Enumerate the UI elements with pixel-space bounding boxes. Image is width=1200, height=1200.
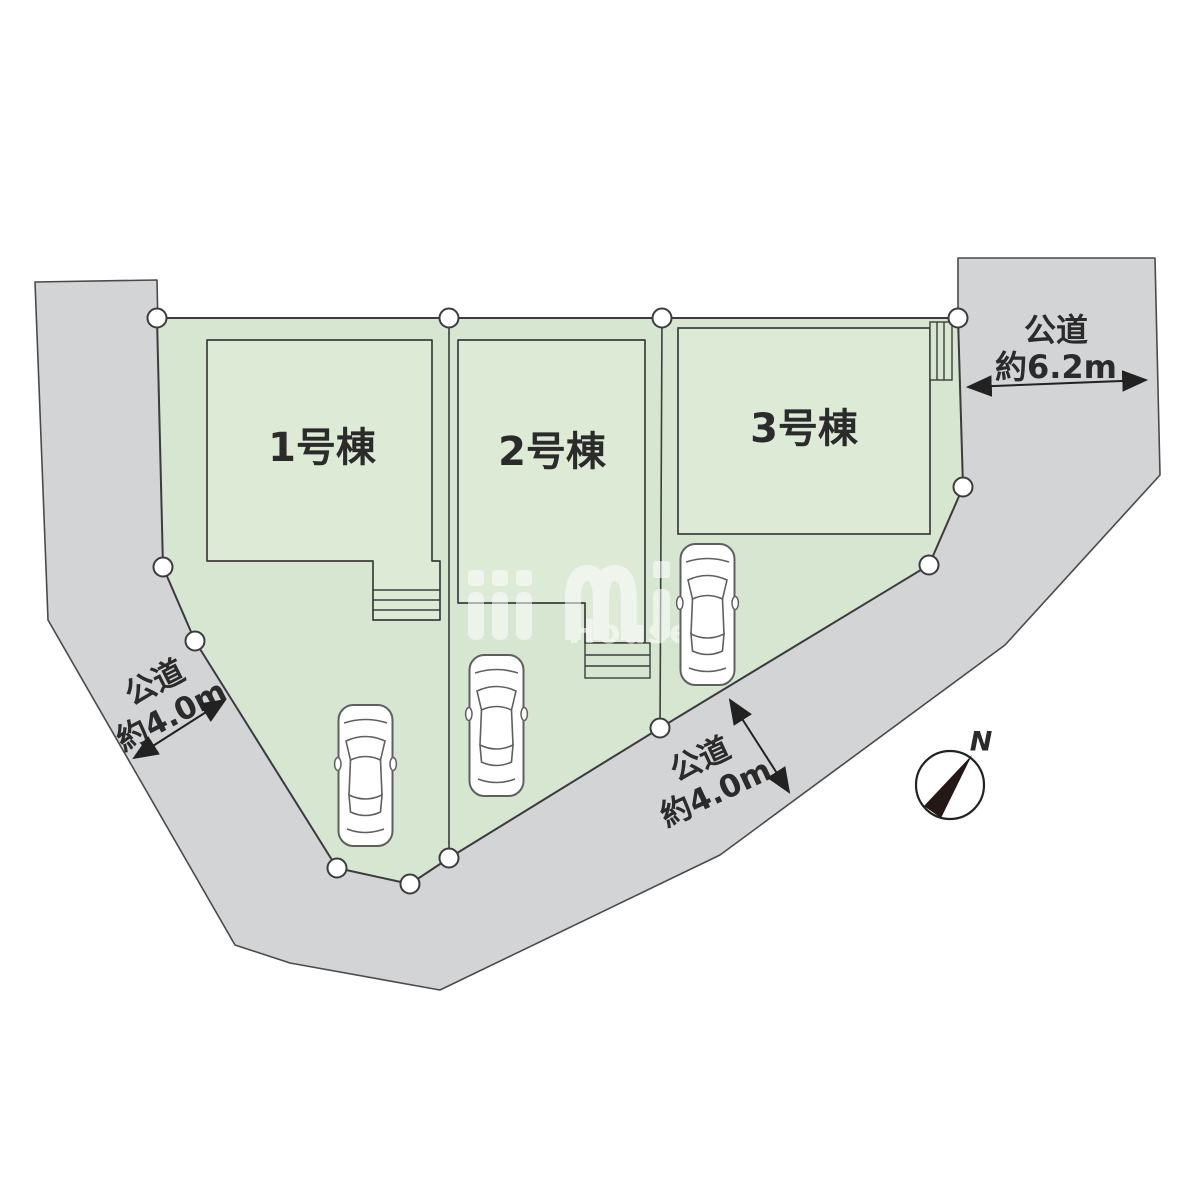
boundary-marker	[186, 632, 205, 651]
car-lot3	[677, 544, 739, 685]
boundary-marker	[920, 556, 939, 575]
watermark-logo-bars	[468, 570, 532, 640]
car-lot1	[335, 705, 397, 846]
road-right-name: 公道	[1024, 311, 1088, 349]
boundary-marker	[440, 849, 459, 868]
building-2-outline	[458, 340, 645, 643]
boundary-marker	[651, 719, 670, 738]
lot1-label: 1号棟	[268, 425, 377, 471]
boundary-marker	[440, 309, 459, 328]
boundary-marker	[154, 558, 173, 577]
car-lot2	[466, 655, 528, 796]
road-right-width: 約6.2m	[995, 348, 1117, 386]
boundary-marker	[653, 309, 672, 328]
building-3-entrance-steps	[930, 322, 952, 380]
compass: N	[916, 727, 993, 820]
boundary-marker	[328, 859, 347, 878]
site-plan-svg: House & 1号棟 2号棟 3号棟 公道 約6.2m 公道 約4.0m 公道…	[0, 0, 1200, 1200]
lot3-label: 3号棟	[750, 406, 859, 452]
boundary-marker	[401, 875, 420, 894]
boundary-marker	[949, 309, 968, 328]
boundary-marker	[954, 478, 973, 497]
lot2-label: 2号棟	[498, 429, 607, 475]
site-plan-canvas: House & 1号棟 2号棟 3号棟 公道 約6.2m 公道 約4.0m 公道…	[0, 0, 1200, 1200]
boundary-marker	[148, 309, 167, 328]
compass-north-label: N	[970, 727, 993, 758]
